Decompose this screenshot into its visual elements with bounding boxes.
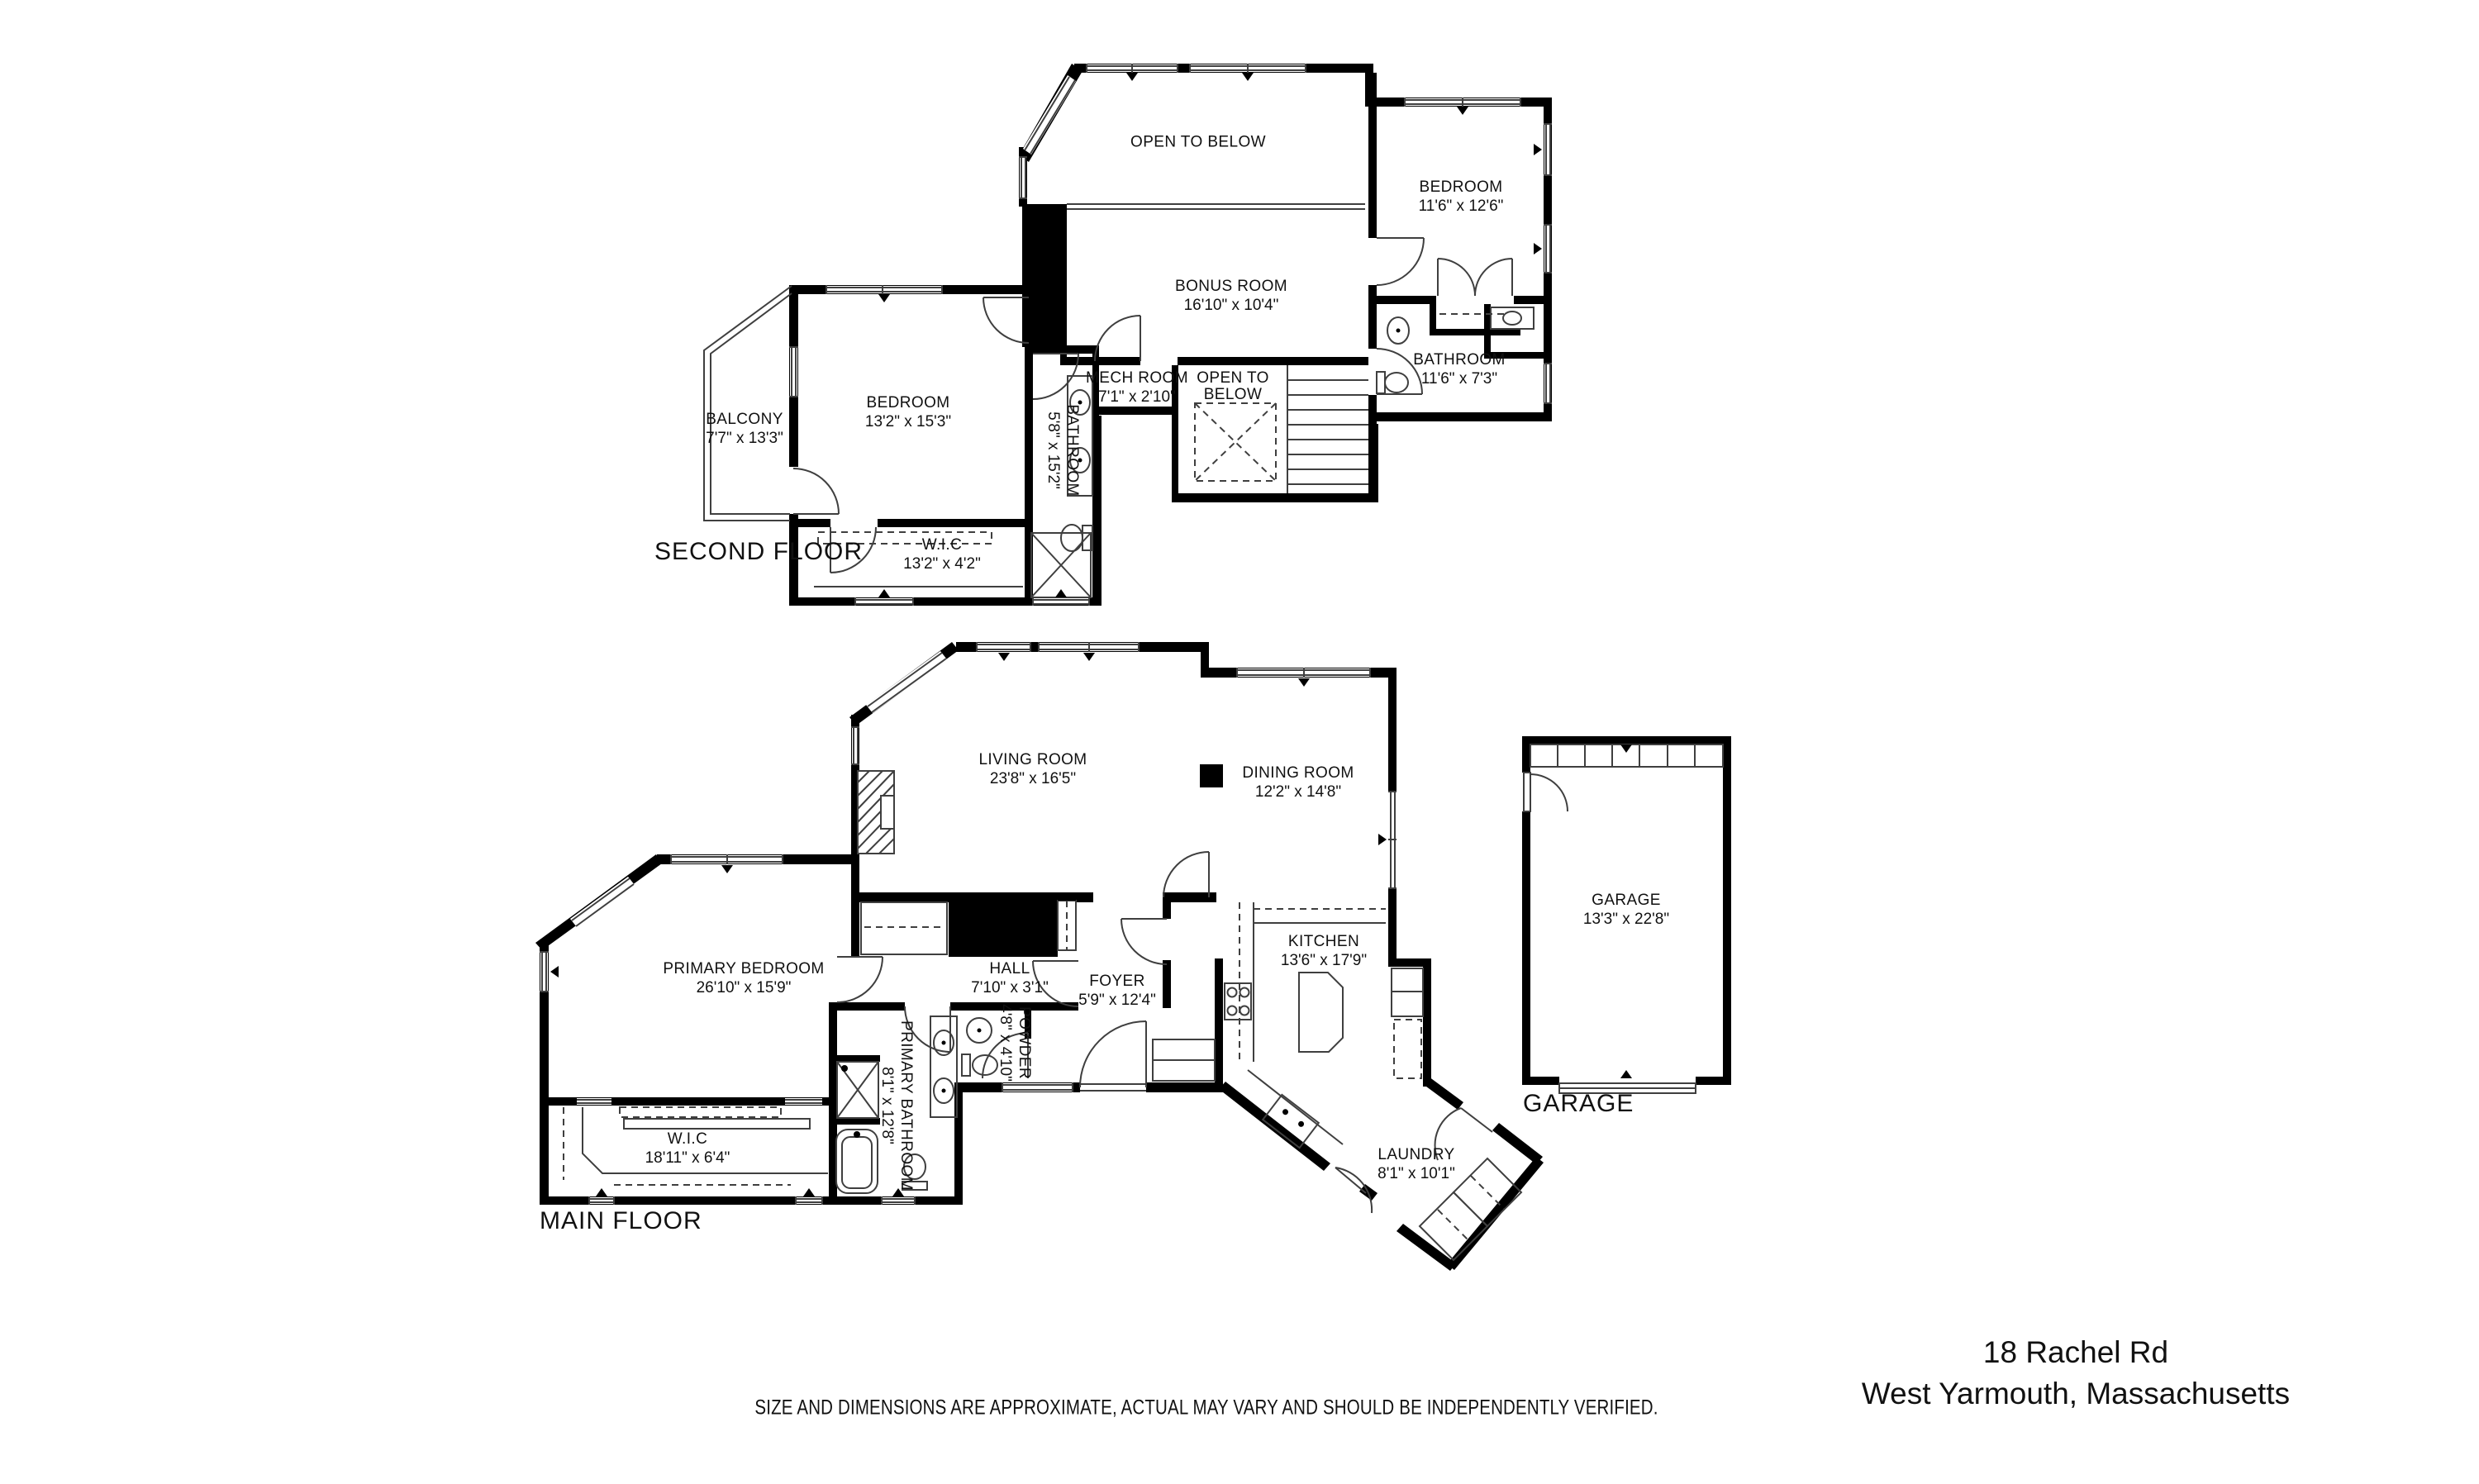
room-label-primary-bedroom: PRIMARY BEDROOM 26'10" x 15'9" [663,961,824,996]
floor-title-main: MAIN FLOOR [540,1207,702,1235]
room-label-bathroom-2: BATHROOM 11'6" x 7'3" [1413,352,1506,387]
room-label-bedroom-2: BEDROOM 11'6" x 12'6" [1419,179,1504,214]
room-label-living-room: LIVING ROOM 23'8" x 16'5" [978,752,1087,787]
disclaimer-text: SIZE AND DIMENSIONS ARE APPROXIMATE, ACT… [754,1396,1658,1420]
room-label-kitchen: KITCHEN 13'6" x 17'9" [1281,934,1367,968]
room-label-foyer: FOYER 5'9" x 12'4" [1078,973,1156,1008]
room-label-open-to-below-small: OPEN TO BELOW [1192,370,1274,403]
floor-title-second: SECOND FLOOR [654,538,863,566]
floor-plan-drawing [0,0,2479,1484]
floor-title-garage: GARAGE [1523,1090,1634,1118]
room-label-mech-room: MECH ROOM 7'1" x 2'10" [1086,370,1188,405]
floorplan-page: OPEN TO BELOW BEDROOM 11'6" x 12'6" BONU… [0,0,2479,1484]
second-floor-plan [704,64,1552,606]
address-line1: 18 Rachel Rd [1862,1332,2290,1373]
room-label-wic-main: W.I.C 18'11" x 6'4" [645,1131,730,1166]
second-floor-features [704,73,1542,597]
room-label-hall: HALL 7'10" x 3'1" [971,961,1049,996]
room-label-dining-room: DINING ROOM 12'2" x 14'8" [1242,765,1354,800]
room-label-bonus-room: BONUS ROOM 16'10" x 10'4" [1175,278,1287,313]
room-label-bedroom-1: BEDROOM 13'2" x 15'3" [865,395,951,430]
address-line2: West Yarmouth, Massachusetts [1862,1373,2290,1415]
room-label-open-to-below: OPEN TO BELOW [1130,135,1266,150]
room-label-balcony: BALCONY 7'7" x 13'3" [706,411,783,446]
room-label-primary-bathroom: PRIMARY BATHROOM 8'1" x 12'8" [879,1020,914,1191]
room-label-garage: GARAGE 13'3" x 22'8" [1583,892,1669,927]
room-label-powder: POWDER 4'8" x 4'10" [997,1004,1032,1082]
room-label-laundry: LAUNDRY 8'1" x 10'1" [1377,1147,1455,1182]
room-label-wic-second: W.I.C 13'2" x 4'2" [903,537,981,572]
address-block: 18 Rachel Rd West Yarmouth, Massachusett… [1862,1332,2290,1415]
room-label-bathroom-1: BATHROOM 5'8" x 15'2" [1045,404,1080,497]
